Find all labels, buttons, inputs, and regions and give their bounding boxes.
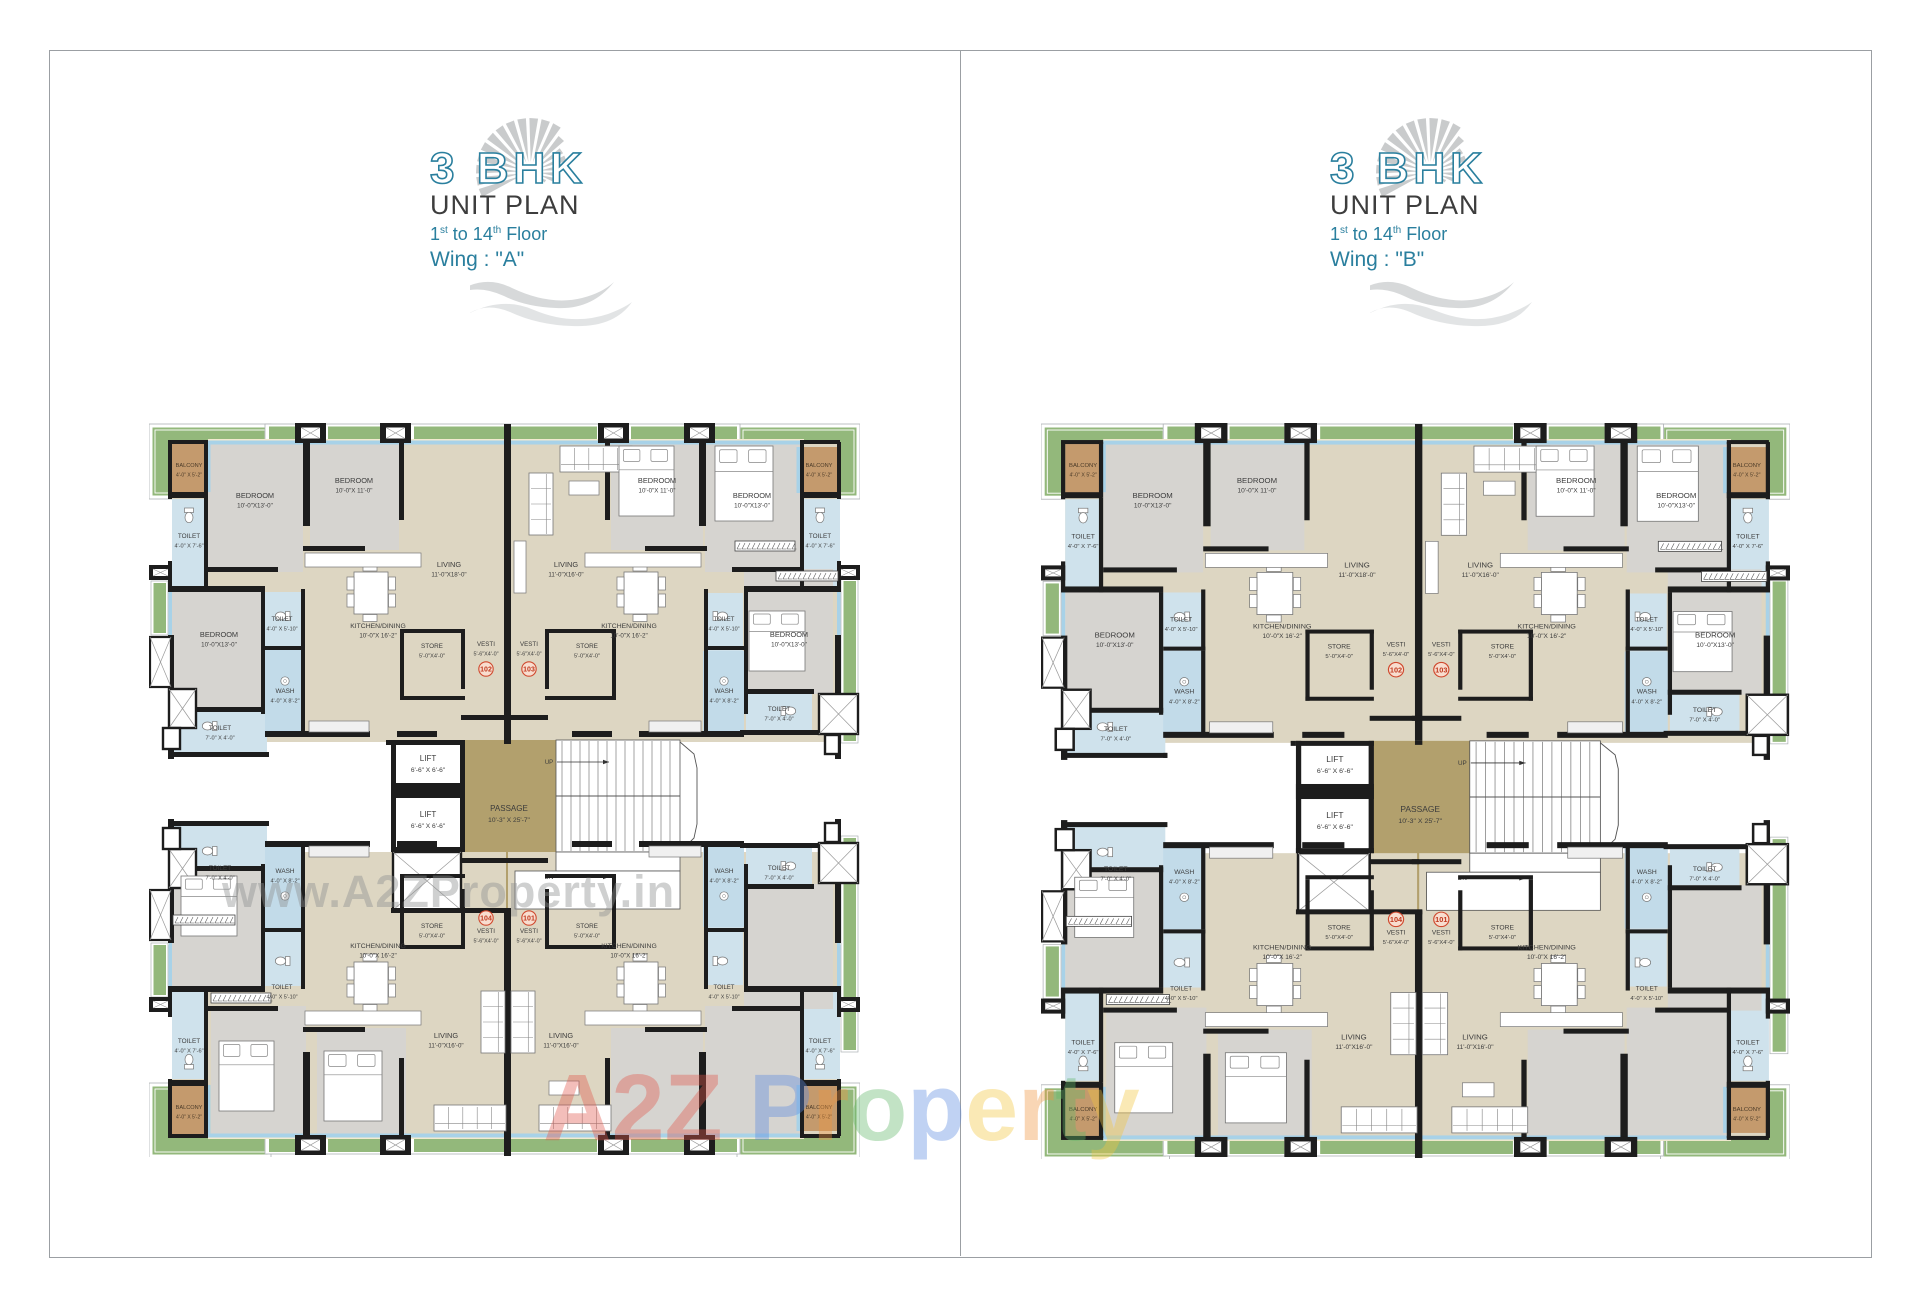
svg-text:10'-0"X13'-0": 10'-0"X13'-0" bbox=[734, 503, 770, 510]
svg-text:BEDROOM: BEDROOM bbox=[236, 491, 274, 500]
svg-text:102: 102 bbox=[480, 667, 492, 674]
svg-text:WASH: WASH bbox=[715, 688, 734, 695]
svg-text:11'-0"X16'-0": 11'-0"X16'-0" bbox=[543, 1043, 578, 1050]
svg-text:5'-6"X4'-0": 5'-6"X4'-0" bbox=[516, 939, 541, 945]
svg-text:TOILET: TOILET bbox=[809, 1038, 831, 1045]
svg-text:5'-0"X4'-0": 5'-0"X4'-0" bbox=[574, 654, 600, 660]
svg-text:4'-0" X 5'-2": 4'-0" X 5'-2" bbox=[176, 473, 202, 479]
svg-text:WASH: WASH bbox=[276, 688, 295, 695]
svg-text:KITCHEN/DINING: KITCHEN/DINING bbox=[601, 943, 657, 950]
svg-text:VESTI: VESTI bbox=[520, 641, 538, 648]
svg-text:4'-0" X 5'-10": 4'-0" X 5'-10" bbox=[708, 627, 739, 633]
svg-text:UP: UP bbox=[545, 760, 553, 766]
svg-text:5'-0"X4'-0": 5'-0"X4'-0" bbox=[574, 934, 600, 940]
svg-text:6'-6" X 6'-6": 6'-6" X 6'-6" bbox=[411, 767, 446, 774]
svg-text:7'-0" X 4'-0": 7'-0" X 4'-0" bbox=[764, 876, 793, 882]
svg-text:VESTI: VESTI bbox=[477, 928, 495, 935]
svg-text:10'-3" X 25'-7": 10'-3" X 25'-7" bbox=[488, 817, 530, 824]
svg-text:TOILET: TOILET bbox=[209, 725, 231, 732]
svg-text:10'-0"X 16'-2": 10'-0"X 16'-2" bbox=[610, 633, 647, 640]
svg-text:4'-0" X 5'-10": 4'-0" X 5'-10" bbox=[266, 995, 297, 1001]
svg-text:VESTI: VESTI bbox=[477, 641, 495, 648]
svg-text:103: 103 bbox=[523, 667, 535, 674]
svg-text:TOILET: TOILET bbox=[768, 865, 790, 872]
svg-text:5'-0"X4'-0": 5'-0"X4'-0" bbox=[419, 934, 445, 940]
svg-text:7'-0" X 4'-0": 7'-0" X 4'-0" bbox=[205, 736, 234, 742]
svg-text:BEDROOM: BEDROOM bbox=[638, 476, 676, 485]
svg-text:10'-0"X13'-0": 10'-0"X13'-0" bbox=[771, 642, 807, 649]
svg-text:LIVING: LIVING bbox=[434, 1031, 458, 1040]
svg-text:BALCONY: BALCONY bbox=[176, 463, 203, 469]
svg-text:5'-6"X4'-0": 5'-6"X4'-0" bbox=[473, 939, 498, 945]
svg-text:10'-0"X 11'-0": 10'-0"X 11'-0" bbox=[639, 488, 676, 495]
svg-text:10'-0"X 11'-0": 10'-0"X 11'-0" bbox=[336, 488, 373, 495]
svg-text:TOILET: TOILET bbox=[272, 617, 293, 623]
svg-text:4'-0" X 7'-6": 4'-0" X 7'-6" bbox=[174, 1049, 203, 1055]
svg-text:4'-0" X 8'-2": 4'-0" X 8'-2" bbox=[270, 699, 299, 705]
svg-text:STORE: STORE bbox=[421, 643, 443, 650]
svg-text:STORE: STORE bbox=[576, 643, 598, 650]
svg-text:4'-0" X 5'-2": 4'-0" X 5'-2" bbox=[806, 473, 832, 479]
svg-text:11'-0"X16'-0": 11'-0"X16'-0" bbox=[428, 1043, 463, 1050]
svg-text:4'-0" X 5'-2": 4'-0" X 5'-2" bbox=[176, 1115, 202, 1121]
svg-text:4'-0" X 7'-6": 4'-0" X 7'-6" bbox=[174, 544, 203, 550]
svg-text:4'-0" X 8'-2": 4'-0" X 8'-2" bbox=[709, 699, 738, 705]
svg-text:11'-0"X18'-0": 11'-0"X18'-0" bbox=[431, 572, 466, 579]
svg-text:10'-0"X 16'-2": 10'-0"X 16'-2" bbox=[359, 633, 396, 640]
svg-text:5'-0"X4'-0": 5'-0"X4'-0" bbox=[419, 654, 445, 660]
svg-text:WASH: WASH bbox=[715, 868, 734, 875]
svg-text:LIFT: LIFT bbox=[420, 754, 437, 763]
svg-text:BEDROOM: BEDROOM bbox=[770, 630, 808, 639]
svg-text:11'-0"X16'-0": 11'-0"X16'-0" bbox=[548, 572, 583, 579]
svg-text:5'-6"X4'-0": 5'-6"X4'-0" bbox=[516, 652, 541, 658]
svg-text:BEDROOM: BEDROOM bbox=[335, 476, 373, 485]
svg-text:LIVING: LIVING bbox=[554, 560, 578, 569]
svg-text:BEDROOM: BEDROOM bbox=[200, 630, 238, 639]
svg-text:10'-0"X13'-0": 10'-0"X13'-0" bbox=[237, 503, 273, 510]
svg-text:4'-0" X 5'-10": 4'-0" X 5'-10" bbox=[266, 627, 297, 633]
svg-text:TOILET: TOILET bbox=[178, 533, 200, 540]
svg-text:10'-0"X 16'-2": 10'-0"X 16'-2" bbox=[610, 953, 647, 960]
svg-text:STORE: STORE bbox=[421, 923, 443, 930]
svg-text:KITCHEN/DINING: KITCHEN/DINING bbox=[350, 623, 406, 630]
svg-text:LIVING: LIVING bbox=[549, 1031, 573, 1040]
svg-text:TOILET: TOILET bbox=[272, 985, 293, 991]
svg-text:VESTI: VESTI bbox=[520, 928, 538, 935]
svg-text:4'-0" X 5'-10": 4'-0" X 5'-10" bbox=[708, 995, 739, 1001]
svg-text:TOILET: TOILET bbox=[768, 706, 790, 713]
svg-text:KITCHEN/DINING: KITCHEN/DINING bbox=[350, 943, 406, 950]
svg-text:PASSAGE: PASSAGE bbox=[490, 804, 528, 813]
svg-text:4'-0" X 8'-2": 4'-0" X 8'-2" bbox=[709, 879, 738, 885]
svg-text:5'-6"X4'-0": 5'-6"X4'-0" bbox=[473, 652, 498, 658]
svg-text:TOILET: TOILET bbox=[714, 985, 735, 991]
svg-text:TOILET: TOILET bbox=[809, 533, 831, 540]
svg-text:BALCONY: BALCONY bbox=[806, 463, 833, 469]
svg-text:6'-6" X 6'-6": 6'-6" X 6'-6" bbox=[411, 823, 446, 830]
svg-text:LIVING: LIVING bbox=[437, 560, 461, 569]
svg-text:TOILET: TOILET bbox=[714, 617, 735, 623]
svg-text:STORE: STORE bbox=[576, 923, 598, 930]
svg-text:BEDROOM: BEDROOM bbox=[733, 491, 771, 500]
svg-text:LIFT: LIFT bbox=[420, 810, 437, 819]
svg-text:4'-0" X 7'-6": 4'-0" X 7'-6" bbox=[805, 544, 834, 550]
svg-text:TOILET: TOILET bbox=[178, 1038, 200, 1045]
svg-text:10'-0"X13'-0": 10'-0"X13'-0" bbox=[201, 642, 237, 649]
svg-text:10'-0"X 16'-2": 10'-0"X 16'-2" bbox=[359, 953, 396, 960]
svg-text:KITCHEN/DINING: KITCHEN/DINING bbox=[601, 623, 657, 630]
svg-text:7'-0" X 4'-0": 7'-0" X 4'-0" bbox=[764, 717, 793, 723]
svg-text:BALCONY: BALCONY bbox=[176, 1105, 203, 1111]
